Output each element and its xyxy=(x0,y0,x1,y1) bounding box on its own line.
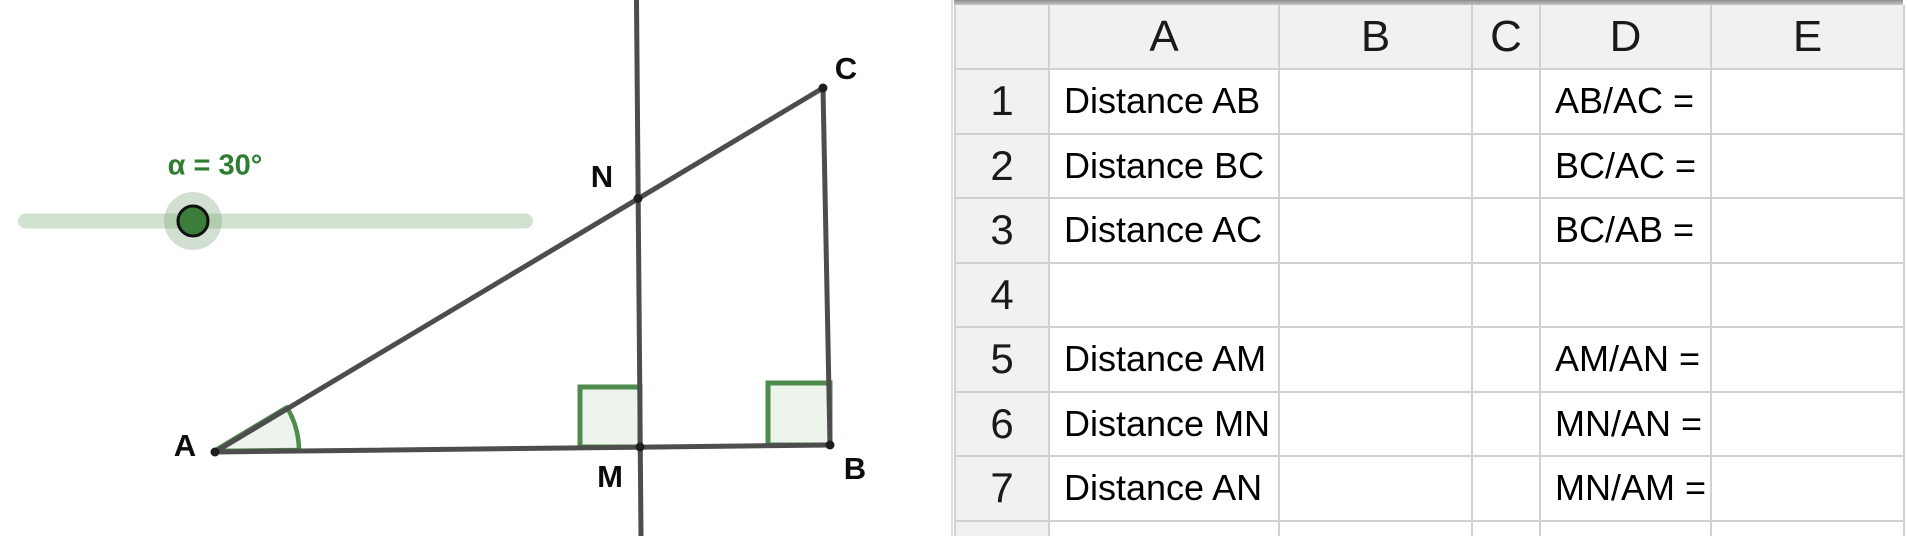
cell-C1[interactable] xyxy=(1473,70,1541,135)
cell-A2[interactable]: Distance BC xyxy=(1050,135,1280,200)
row-header-1[interactable]: 1 xyxy=(956,70,1050,135)
cell-B5[interactable] xyxy=(1280,328,1473,393)
graphics-view[interactable]: α = 30° A B C M N xyxy=(0,0,952,536)
col-header-A[interactable]: A xyxy=(1050,5,1280,70)
point-b[interactable] xyxy=(826,441,835,450)
col-header-E[interactable]: E xyxy=(1712,5,1905,70)
row-header-8[interactable]: 8 xyxy=(956,522,1050,536)
point-n[interactable] xyxy=(634,194,643,203)
cell-C5[interactable] xyxy=(1473,328,1541,393)
cell-B4[interactable] xyxy=(1280,264,1473,329)
spreadsheet-grid[interactable]: ABCDE1Distance ABAB/AC =2Distance BCBC/A… xyxy=(954,5,1903,536)
cell-D3[interactable]: BC/AB = xyxy=(1541,199,1712,264)
point-label-b: B xyxy=(844,451,866,487)
spreadsheet-view[interactable]: ABCDE1Distance ABAB/AC =2Distance BCBC/A… xyxy=(954,0,1907,536)
cell-C2[interactable] xyxy=(1473,135,1541,200)
cell-A4[interactable] xyxy=(1050,264,1280,329)
cell-E8[interactable] xyxy=(1712,522,1905,536)
cell-E3[interactable] xyxy=(1712,199,1905,264)
segment-ac[interactable] xyxy=(215,88,823,452)
geometry-canvas[interactable] xyxy=(0,0,952,536)
angle-slider-value-label: α = 30° xyxy=(168,150,263,183)
row-header-5[interactable]: 5 xyxy=(956,328,1050,393)
cell-C8[interactable] xyxy=(1473,522,1541,536)
panel-divider xyxy=(951,0,953,536)
cell-E1[interactable] xyxy=(1712,70,1905,135)
row-header-7[interactable]: 7 xyxy=(956,457,1050,522)
point-label-a: A xyxy=(174,428,196,464)
right-angle-marker-m[interactable] xyxy=(580,387,640,447)
angle-slider-track[interactable] xyxy=(18,214,533,229)
cell-D1[interactable]: AB/AC = xyxy=(1541,70,1712,135)
cell-A6[interactable]: Distance MN xyxy=(1050,393,1280,458)
cell-C7[interactable] xyxy=(1473,457,1541,522)
col-header-B[interactable]: B xyxy=(1280,5,1473,70)
point-label-c: C xyxy=(835,51,857,87)
cell-B8[interactable] xyxy=(1280,522,1473,536)
cell-A1[interactable]: Distance AB xyxy=(1050,70,1280,135)
point-m[interactable] xyxy=(636,443,645,452)
cell-D6[interactable]: MN/AN = xyxy=(1541,393,1712,458)
cell-E5[interactable] xyxy=(1712,328,1905,393)
cell-B2[interactable] xyxy=(1280,135,1473,200)
cell-A7[interactable]: Distance AN xyxy=(1050,457,1280,522)
point-c[interactable] xyxy=(819,84,828,93)
row-header-6[interactable]: 6 xyxy=(956,393,1050,458)
cell-D8[interactable] xyxy=(1541,522,1712,536)
cell-B3[interactable] xyxy=(1280,199,1473,264)
corner-cell[interactable] xyxy=(956,5,1050,70)
cell-C4[interactable] xyxy=(1473,264,1541,329)
cell-E7[interactable] xyxy=(1712,457,1905,522)
segment-ab[interactable] xyxy=(215,445,830,452)
cell-B6[interactable] xyxy=(1280,393,1473,458)
row-header-3[interactable]: 3 xyxy=(956,199,1050,264)
cell-A5[interactable]: Distance AM xyxy=(1050,328,1280,393)
cell-E6[interactable] xyxy=(1712,393,1905,458)
row-header-2[interactable]: 2 xyxy=(956,135,1050,200)
cell-A3[interactable]: Distance AC xyxy=(1050,199,1280,264)
cell-C6[interactable] xyxy=(1473,393,1541,458)
cell-C3[interactable] xyxy=(1473,199,1541,264)
row-header-4[interactable]: 4 xyxy=(956,264,1050,329)
cell-B1[interactable] xyxy=(1280,70,1473,135)
cell-A8[interactable] xyxy=(1050,522,1280,536)
point-label-m: M xyxy=(597,459,623,495)
cell-E2[interactable] xyxy=(1712,135,1905,200)
cell-D2[interactable]: BC/AC = xyxy=(1541,135,1712,200)
col-header-C[interactable]: C xyxy=(1473,5,1541,70)
point-a[interactable] xyxy=(211,448,220,457)
cell-D4[interactable] xyxy=(1541,264,1712,329)
app-window: { "graphics": { "slider_label": "α = 30°… xyxy=(0,0,1907,536)
col-header-D[interactable]: D xyxy=(1541,5,1712,70)
angle-slider-handle[interactable] xyxy=(178,206,208,236)
point-label-n: N xyxy=(591,159,613,195)
right-angle-marker-b[interactable] xyxy=(768,383,830,445)
cell-E4[interactable] xyxy=(1712,264,1905,329)
cell-D7[interactable]: MN/AM = xyxy=(1541,457,1712,522)
cell-B7[interactable] xyxy=(1280,457,1473,522)
cell-D5[interactable]: AM/AN = xyxy=(1541,328,1712,393)
line-mn[interactable] xyxy=(637,0,642,536)
